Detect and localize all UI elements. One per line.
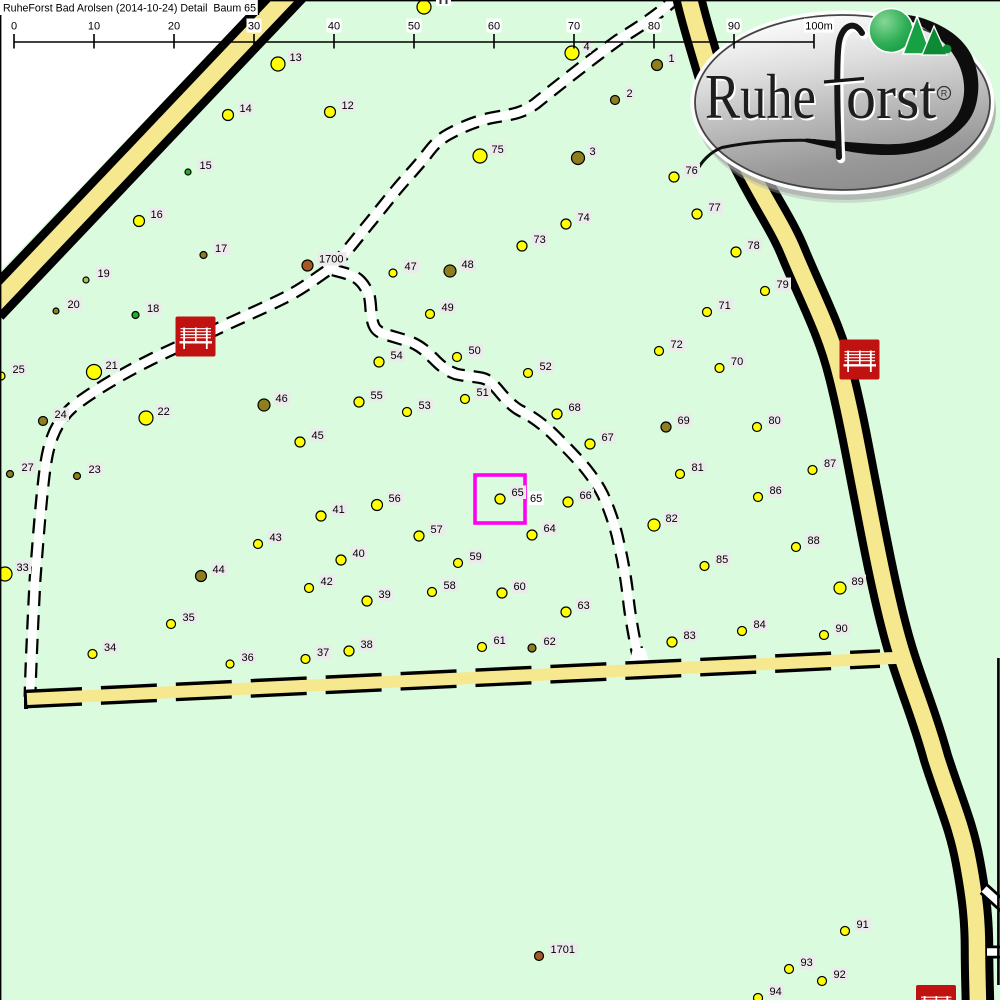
svg-text:56: 56	[389, 493, 401, 505]
svg-text:74: 74	[578, 212, 590, 224]
svg-text:52: 52	[540, 361, 552, 373]
svg-text:36: 36	[242, 652, 254, 664]
svg-text:1701: 1701	[551, 944, 575, 956]
svg-text:15: 15	[200, 160, 212, 172]
svg-text:70: 70	[568, 21, 580, 33]
svg-text:88: 88	[808, 535, 820, 547]
svg-text:21: 21	[106, 360, 118, 372]
svg-text:63: 63	[578, 600, 590, 612]
svg-text:20: 20	[68, 299, 80, 311]
svg-text:73: 73	[534, 234, 546, 246]
svg-text:87: 87	[824, 458, 836, 470]
svg-text:16: 16	[151, 209, 163, 221]
svg-text:50: 50	[408, 21, 420, 33]
svg-text:86: 86	[770, 485, 782, 497]
svg-text:48: 48	[462, 259, 474, 271]
svg-text:43: 43	[270, 532, 282, 544]
svg-text:66: 66	[580, 490, 592, 502]
svg-text:33: 33	[17, 562, 29, 574]
svg-text:41: 41	[333, 504, 345, 516]
svg-text:61: 61	[494, 635, 506, 647]
svg-text:R: R	[941, 89, 948, 99]
svg-text:12: 12	[342, 100, 354, 112]
svg-text:2: 2	[627, 88, 633, 100]
svg-text:19: 19	[98, 268, 110, 280]
svg-text:35: 35	[183, 612, 195, 624]
svg-text:38: 38	[361, 639, 373, 651]
svg-text:RuheForst Bad Arolsen (2014-10: RuheForst Bad Arolsen (2014-10-24) Detai…	[3, 3, 256, 15]
svg-text:20: 20	[168, 21, 180, 33]
svg-text:25: 25	[13, 364, 25, 376]
svg-text:13: 13	[290, 52, 302, 64]
svg-text:83: 83	[684, 630, 696, 642]
svg-text:59: 59	[470, 551, 482, 563]
svg-text:Ruhe: Ruhe	[705, 60, 816, 132]
svg-text:92: 92	[834, 969, 846, 981]
svg-text:44: 44	[213, 564, 225, 576]
svg-text:60: 60	[514, 581, 526, 593]
svg-text:18: 18	[147, 303, 159, 315]
svg-text:3: 3	[590, 146, 596, 158]
svg-text:57: 57	[431, 524, 443, 536]
svg-text:100m: 100m	[805, 21, 833, 33]
svg-text:91: 91	[857, 919, 869, 931]
svg-text:69: 69	[678, 415, 690, 427]
svg-text:80: 80	[769, 415, 781, 427]
svg-text:75: 75	[492, 144, 504, 156]
svg-text:77: 77	[709, 202, 721, 214]
svg-text:50: 50	[469, 345, 481, 357]
svg-text:62: 62	[544, 636, 556, 648]
svg-text:78: 78	[748, 240, 760, 252]
svg-text:51: 51	[477, 387, 489, 399]
svg-text:53: 53	[419, 400, 431, 412]
svg-text:47: 47	[405, 261, 417, 273]
svg-text:90: 90	[836, 623, 848, 635]
svg-text:89: 89	[852, 576, 864, 588]
svg-text:0: 0	[11, 21, 17, 33]
svg-text:94: 94	[770, 986, 782, 998]
svg-text:30: 30	[248, 21, 260, 33]
svg-text:22: 22	[158, 406, 170, 418]
svg-text:80: 80	[648, 21, 660, 33]
svg-text:82: 82	[666, 513, 678, 525]
svg-text:60: 60	[488, 21, 500, 33]
svg-text:24: 24	[55, 409, 67, 421]
svg-text:1700: 1700	[319, 254, 343, 266]
svg-text:93: 93	[801, 957, 813, 969]
svg-text:54: 54	[391, 350, 403, 362]
svg-text:65: 65	[512, 487, 524, 499]
svg-text:68: 68	[569, 402, 581, 414]
svg-text:64: 64	[544, 523, 556, 535]
svg-text:55: 55	[371, 390, 383, 402]
svg-text:67: 67	[602, 432, 614, 444]
svg-text:46: 46	[276, 393, 288, 405]
svg-text:90: 90	[728, 21, 740, 33]
svg-text:72: 72	[671, 339, 683, 351]
svg-text:65: 65	[530, 493, 542, 505]
svg-text:70: 70	[731, 356, 743, 368]
svg-text:10: 10	[88, 21, 100, 33]
svg-text:42: 42	[321, 576, 333, 588]
svg-text:85: 85	[716, 554, 728, 566]
svg-text:40: 40	[353, 548, 365, 560]
svg-text:39: 39	[379, 589, 391, 601]
svg-text:81: 81	[692, 462, 704, 474]
svg-text:76: 76	[686, 165, 698, 177]
svg-text:71: 71	[719, 300, 731, 312]
svg-text:17: 17	[215, 243, 227, 255]
svg-text:45: 45	[312, 430, 324, 442]
svg-text:79: 79	[777, 279, 789, 291]
svg-text:49: 49	[442, 302, 454, 314]
svg-text:23: 23	[89, 464, 101, 476]
svg-text:40: 40	[328, 21, 340, 33]
svg-text:37: 37	[317, 647, 329, 659]
svg-text:orst: orst	[846, 60, 936, 132]
svg-text:58: 58	[444, 580, 456, 592]
svg-text:1: 1	[669, 53, 675, 65]
svg-text:14: 14	[240, 103, 252, 115]
svg-text:34: 34	[104, 642, 116, 654]
svg-text:84: 84	[754, 619, 766, 631]
svg-text:27: 27	[22, 462, 34, 474]
